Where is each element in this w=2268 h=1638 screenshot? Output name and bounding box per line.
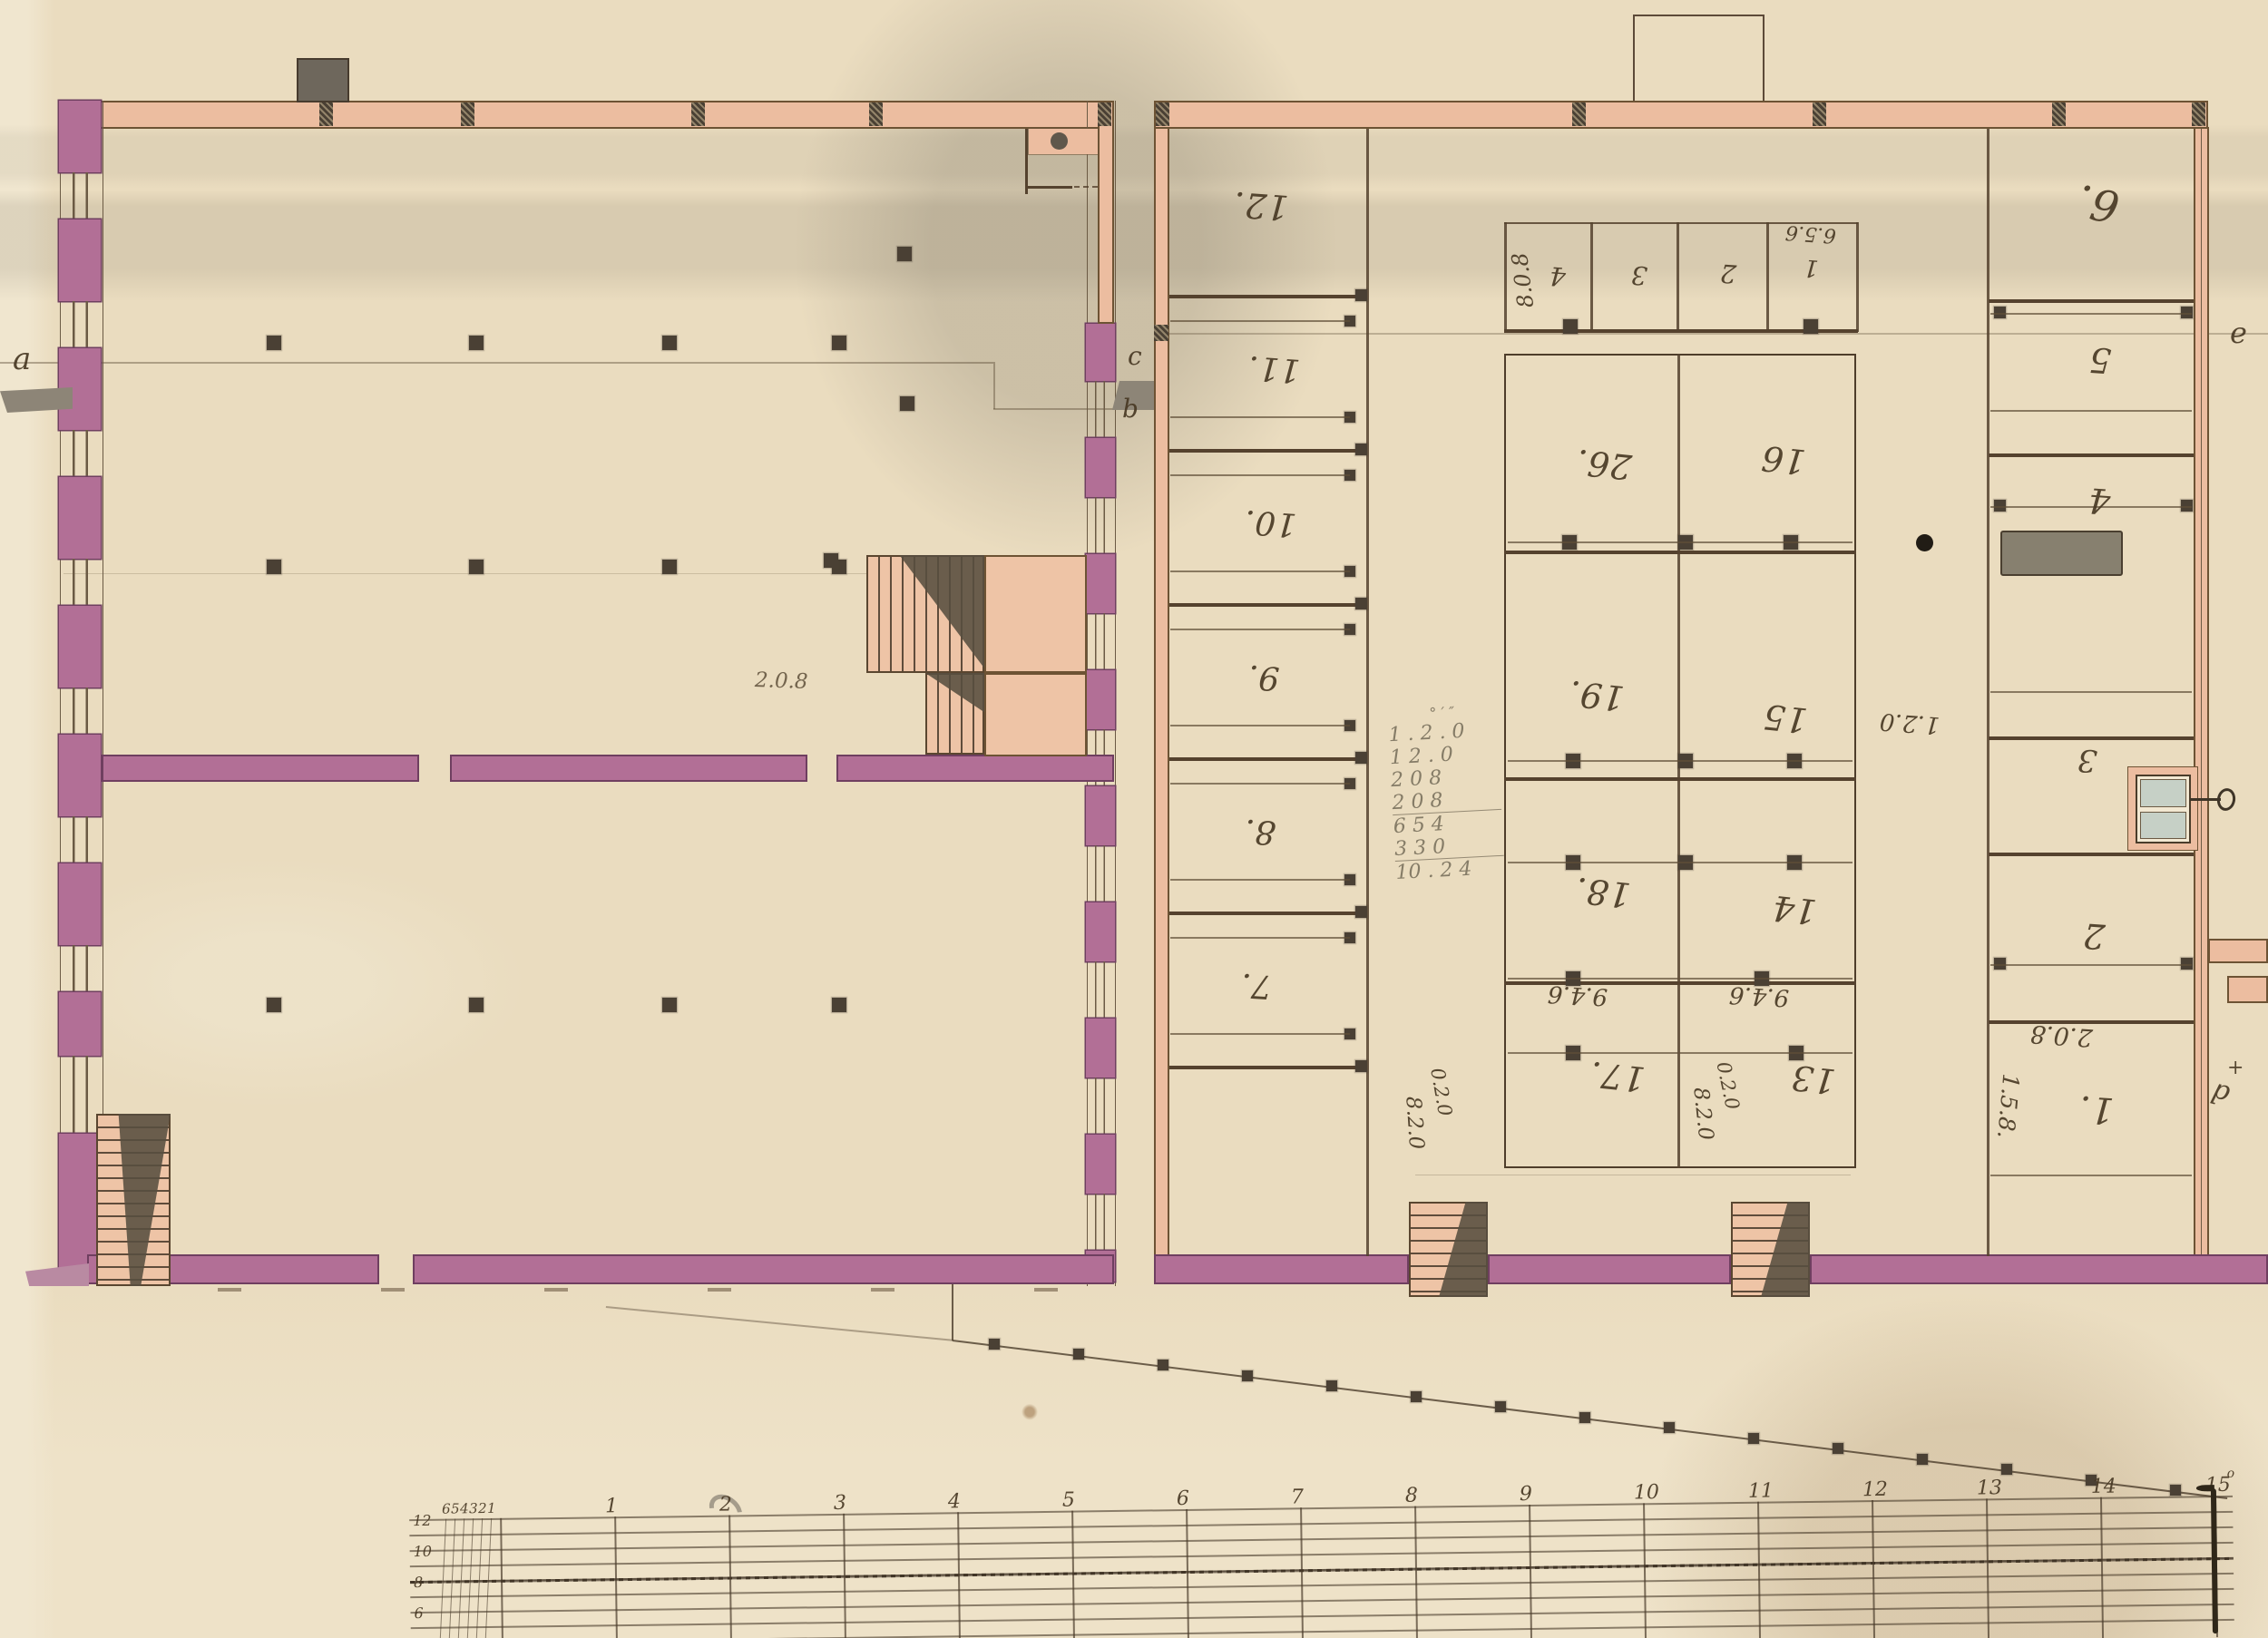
scale-major-line [1872, 1500, 1875, 1638]
scale-hline [411, 1619, 2234, 1638]
room-label-r4: 4 [2087, 480, 2111, 522]
post [469, 336, 484, 350]
room-label-12: 12. [1233, 184, 1290, 228]
wall-pier [59, 101, 101, 172]
right-column-west-wall [1987, 129, 1989, 1256]
dim-small-room-height: 8.0.8 [1507, 251, 1539, 309]
scale-major-label: 1 [605, 1495, 618, 1517]
fence-post [1411, 1391, 1422, 1402]
room-label-10: 10. [1244, 502, 1298, 543]
wall-window [61, 816, 100, 863]
tick [544, 1288, 568, 1292]
east-annex-wall-1 [2208, 939, 2268, 963]
small-room-wall [1677, 222, 1679, 332]
wall-window [61, 559, 100, 606]
scale-major-label: 14 [2091, 1476, 2116, 1498]
dim-row-left: 9.4.6 [1547, 980, 1608, 1009]
beam-line [1508, 760, 1853, 762]
grey-wedge-west [0, 387, 73, 413]
room-label-s3: 3 [1630, 259, 1648, 290]
scale-major-label: 7 [1291, 1486, 1304, 1508]
wall-window [1088, 845, 1112, 902]
floor-plan-sheet: 1234567891011121314156543211210864o a c … [0, 0, 2268, 1638]
section-letter-c: c [1128, 341, 1142, 371]
beam-line [1990, 313, 2192, 315]
section-line-step [993, 362, 995, 409]
post [897, 247, 912, 261]
scale-major-line [1643, 1503, 1647, 1638]
tick [218, 1288, 241, 1292]
wall-pier [1086, 670, 1115, 729]
scale-minor-label: 6 [442, 1501, 451, 1517]
scale-major-line [2100, 1497, 2104, 1638]
wall-window [1088, 497, 1112, 554]
post [662, 336, 677, 350]
dim-left-building: 2.0.8 [755, 668, 808, 694]
hatch-mark [1098, 102, 1111, 126]
hatch-mark [2192, 102, 2205, 126]
post [1355, 1060, 1367, 1072]
scale-hline [411, 1604, 2234, 1629]
east-annex-wall-2 [2227, 976, 2268, 1003]
room-label-s4: 4 [1549, 260, 1567, 291]
left-building-top-wall [58, 101, 1114, 129]
left-building-bottom-wall-wedge [25, 1263, 89, 1286]
post [267, 998, 281, 1012]
scale-minor-line [466, 1518, 474, 1638]
section-letter-d: d [2208, 1076, 2234, 1111]
stove [2000, 531, 2123, 576]
left-building-east-wall-upper [1098, 101, 1114, 324]
beam-line [1990, 1175, 2192, 1176]
section-letter-d-plus: + [2227, 1057, 2244, 1079]
wall-pier [59, 477, 101, 559]
room-label-15: 15 [1762, 697, 1810, 741]
main-stair-landing [984, 555, 1087, 673]
room-label-r5: 5 [2087, 339, 2112, 381]
wall-pier [1086, 438, 1115, 497]
right-building-west-wall [1154, 127, 1169, 1258]
wall-window [1088, 613, 1112, 670]
dim-bl-a: 8.2.0 [1401, 1096, 1428, 1150]
post [832, 336, 846, 350]
room-label-9: 9. [1247, 658, 1281, 697]
corner-room-wall-h [1025, 186, 1072, 189]
wall-window [1088, 961, 1112, 1019]
scale-hline [410, 1542, 2234, 1567]
right-building-east-wall [2194, 127, 2209, 1258]
room-label-26: 26. [1575, 442, 1634, 487]
beam-line [1990, 964, 2192, 966]
room-label-r3: 3 [2077, 741, 2098, 778]
beam-line [1170, 416, 1350, 418]
room-divider [1169, 1066, 1367, 1069]
room-label-14: 14 [1771, 888, 1819, 932]
beam-line [1170, 570, 1350, 572]
wall-window [1088, 1077, 1112, 1135]
post [469, 998, 484, 1012]
scale-major-label: 10 [1634, 1481, 1659, 1504]
section-letter-e: e [2230, 316, 2247, 350]
small-room-wall [1504, 222, 1507, 332]
left-building-west-wall [60, 101, 103, 1286]
scale-major-label: 3 [834, 1492, 846, 1515]
room-label-19: 19. [1568, 673, 1627, 718]
room-label-s2: 2 [1719, 258, 1737, 288]
dim-hall-width: 1.2.0 [1879, 707, 1941, 739]
room-label-11: 11. [1247, 348, 1302, 389]
fence-post [1158, 1360, 1168, 1370]
small-room-wall [1766, 222, 1769, 332]
room-label-r1: 1. [2077, 1087, 2115, 1132]
key-bow-icon [2215, 786, 2237, 812]
post [824, 553, 838, 568]
interior-wall-2 [450, 755, 807, 782]
scale-major-line [1414, 1506, 1418, 1638]
wall-pier [59, 219, 101, 301]
beam-line [1990, 410, 2192, 412]
beam-line [1170, 879, 1350, 881]
post [267, 560, 281, 574]
hatch-mark [319, 102, 333, 126]
wall-pier [59, 992, 101, 1056]
post [267, 336, 281, 350]
right-building-bottom-wall-2 [1488, 1254, 1731, 1284]
fence-post [1664, 1422, 1675, 1433]
section-letter-a: a [13, 341, 31, 377]
post [1563, 319, 1578, 334]
room-divider [1169, 757, 1367, 761]
dim-rc-width: 2.0.8 [2029, 1019, 2094, 1052]
scale-minor-line [448, 1518, 456, 1638]
tick [708, 1288, 731, 1292]
beam-line [1508, 1052, 1853, 1054]
room-label-r6: 6. [2073, 174, 2124, 232]
door-detail-panel-top [2140, 779, 2186, 807]
calc-total: 10 . 2 4 [1395, 856, 1505, 884]
room-divider [1989, 736, 2194, 740]
hatch-mark [1813, 102, 1826, 126]
scale-major-label: 2 [719, 1494, 732, 1516]
scale-major-line [614, 1516, 618, 1638]
fence-post [1833, 1443, 1843, 1454]
scale-minor-line [475, 1518, 484, 1638]
scale-major-label: 11 [1748, 1479, 1774, 1502]
wall-pier [59, 735, 101, 816]
scale-minor-label: 3 [469, 1500, 478, 1516]
scale-hline [410, 1573, 2234, 1598]
beam-line [1508, 978, 1853, 980]
beam-line [1170, 725, 1350, 726]
room-label-18: 18. [1574, 870, 1633, 915]
post [1355, 598, 1367, 609]
tick [871, 1288, 894, 1292]
section-letter-b: b [1122, 394, 1139, 424]
scale-minor-label: 4 [460, 1500, 469, 1516]
fence-post [1748, 1433, 1759, 1444]
fence-post [1073, 1349, 1084, 1360]
hatch-mark [691, 102, 705, 126]
scale-minor-line [484, 1518, 493, 1638]
wall-window [61, 172, 100, 219]
scale-end-hook [2196, 1485, 2214, 1491]
scale-major-label: 4 [948, 1490, 961, 1513]
interior-wall-3 [836, 755, 1114, 782]
wall-window [61, 301, 100, 348]
room-label-7: 7. [1240, 966, 1274, 1005]
hatch-mark [869, 102, 883, 126]
wall-window [61, 430, 100, 477]
scale-major-label: 13 [1977, 1477, 2002, 1499]
right-building-bottom-wall-3 [1810, 1254, 2268, 1284]
fence-post [1495, 1401, 1506, 1412]
right-building-bottom-wall-1 [1154, 1254, 1409, 1284]
room-label-8: 8. [1244, 812, 1277, 851]
scale-major-label: 8 [1405, 1485, 1418, 1507]
room-divider [1169, 449, 1367, 453]
black-dot-marker [1916, 534, 1933, 551]
scale-row-label: 8 [414, 1574, 423, 1591]
corner-room-door-dashes [1074, 186, 1098, 188]
room-divider [1504, 551, 1856, 554]
right-building-top-wall [1154, 101, 2208, 129]
room-divider [1989, 453, 2194, 457]
post [662, 998, 677, 1012]
post [1355, 444, 1367, 455]
beam-line [1508, 862, 1853, 863]
post [900, 396, 914, 411]
left-building-bottom-wall-2 [413, 1254, 1114, 1284]
tick [381, 1288, 405, 1292]
room-label-s1: 1 [1803, 253, 1820, 281]
wall-window [1088, 1194, 1112, 1251]
fence-connector [952, 1284, 953, 1341]
beam-line [1170, 1033, 1350, 1035]
door-detail-panel-bottom [2140, 812, 2186, 839]
chimney-right-outline [1633, 15, 1765, 102]
dim-rc-height: 1.5.8. [1992, 1073, 2024, 1140]
scale-minor-line [457, 1518, 465, 1638]
room-label-17: 17. [1589, 1054, 1647, 1099]
hatch-mark [461, 102, 474, 126]
fence-line-faint [606, 1306, 953, 1341]
room-label-16: 16 [1760, 438, 1808, 483]
interior-wall-1 [102, 755, 419, 782]
room-divider [1169, 295, 1367, 298]
fence-post [1242, 1370, 1253, 1381]
dim-bl-b: 0.2.0 [1426, 1067, 1456, 1118]
small-room-wall [1590, 222, 1593, 332]
scale-major-line [1757, 1502, 1761, 1638]
post [1355, 906, 1367, 918]
corner-room-wall-v [1025, 129, 1028, 194]
scale-minor-line [439, 1519, 447, 1638]
construction-line [64, 573, 866, 574]
beam-line [1170, 320, 1350, 322]
scale-major-label: 5 [1062, 1489, 1075, 1512]
wall-window [61, 1056, 100, 1134]
scale-degree-mark: o [2227, 1467, 2235, 1481]
scale-hline [410, 1526, 2234, 1552]
room-label-r2: 2 [2081, 915, 2106, 957]
scale-major-line [1986, 1498, 1989, 1638]
hatch-mark [1156, 102, 1169, 126]
construction-line-2 [1415, 1175, 1851, 1175]
wall-pier [59, 863, 101, 945]
scale-minor-label: 2 [478, 1500, 487, 1516]
post [1355, 752, 1367, 764]
wall-pier [1086, 1019, 1115, 1077]
wall-pier [1086, 554, 1115, 613]
wall-pier [1086, 902, 1115, 961]
scale-row-label: 12 [413, 1512, 432, 1529]
scale-major-label: 9 [1520, 1483, 1532, 1506]
section-line-e [1166, 333, 2268, 335]
small-room-wall [1856, 222, 1859, 332]
beam-line [1170, 474, 1350, 476]
scale-major-line [500, 1518, 503, 1638]
room-label-13: 13 [1790, 1058, 1838, 1102]
main-stair-landing-strip [984, 673, 1087, 756]
scale-minor-label: 5 [451, 1500, 460, 1516]
wall-pier [1086, 786, 1115, 845]
beam-line [1170, 783, 1350, 785]
section-line-a [0, 362, 993, 364]
scale-major-label: 12 [1862, 1478, 1888, 1501]
room-divider [1169, 603, 1367, 607]
beam-line [1170, 629, 1350, 630]
tick [1034, 1288, 1058, 1292]
hatch-mark [2052, 102, 2066, 126]
wall-pier [59, 606, 101, 687]
fence-post [1326, 1380, 1337, 1391]
fence-post [989, 1339, 1000, 1350]
post [1804, 319, 1818, 334]
room-divider [1169, 912, 1367, 915]
wall-window [61, 945, 100, 992]
wall-pier [1086, 1135, 1115, 1194]
scale-row-label: 6 [414, 1604, 423, 1622]
wall-window [61, 687, 100, 735]
wall-pier [1086, 324, 1115, 381]
calc-table: ° ′ ″ 1 . 2 . 0 1 2 . 0 2 0 8 2 0 8 6 5 … [1387, 701, 1505, 884]
post [469, 560, 484, 574]
scale-major-line [1186, 1509, 1189, 1638]
beam-line [1990, 691, 2192, 693]
fence-post [2001, 1464, 2012, 1475]
hatch-mark [1154, 325, 1168, 341]
chimney-left [297, 58, 349, 102]
room-divider [1989, 853, 2194, 856]
scale-hline [409, 1496, 2233, 1521]
dim-row-right: 9.4.6 [1728, 980, 1790, 1010]
diagonal-scale-bar: 1234567891011121314156543211210864o [409, 1483, 2234, 1638]
beam-line [1170, 937, 1350, 939]
scale-major-line [1529, 1505, 1532, 1638]
post [662, 560, 677, 574]
beam-line [1508, 541, 1853, 543]
fence-post [1579, 1412, 1590, 1423]
post [832, 998, 846, 1012]
scale-row-label: 10 [413, 1543, 432, 1560]
room-divider [1504, 777, 1856, 781]
fence-post [1917, 1454, 1928, 1465]
post [1355, 289, 1367, 301]
corner-room-circle [1051, 132, 1068, 150]
scale-dotted-row [410, 1557, 2234, 1584]
scale-hline [410, 1588, 2234, 1614]
dim-small-room-width: 6.5.6 [1784, 220, 1837, 247]
scale-hline [409, 1511, 2233, 1536]
room-divider [1989, 299, 2194, 303]
wall-window [1088, 381, 1112, 438]
scale-major-label: 6 [1177, 1487, 1189, 1510]
scale-major-line [1300, 1507, 1304, 1638]
scale-minor-label: 1 [487, 1500, 496, 1516]
hatch-mark [1572, 102, 1586, 126]
